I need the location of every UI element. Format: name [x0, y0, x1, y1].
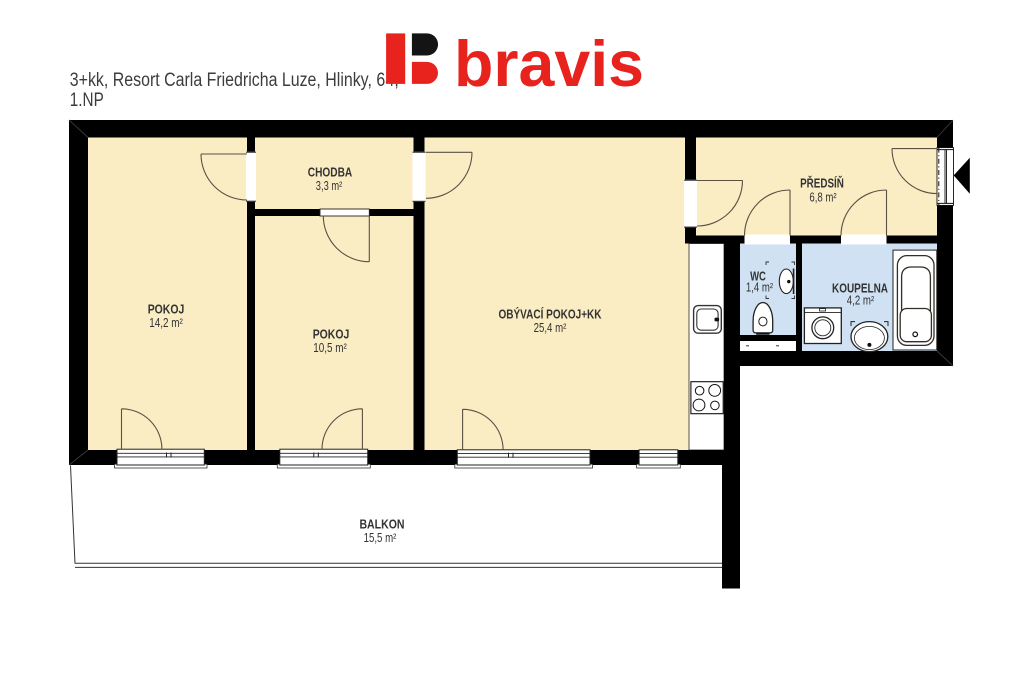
svg-text:1.NP: 1.NP — [70, 90, 104, 111]
svg-text:14,2 m²: 14,2 m² — [149, 316, 183, 330]
svg-text:10,5 m²: 10,5 m² — [313, 341, 347, 355]
svg-text:1,4 m²: 1,4 m² — [746, 281, 773, 295]
svg-text:3+kk, Resort Carla Friedricha: 3+kk, Resort Carla Friedricha Luze, Hlin… — [70, 70, 385, 91]
svg-text:CHODBA: CHODBA — [308, 166, 353, 180]
svg-text:25,4 m²: 25,4 m² — [534, 321, 567, 335]
svg-text:PŘEDSÍŇ: PŘEDSÍŇ — [800, 176, 844, 191]
svg-text:6,8 m²: 6,8 m² — [809, 190, 836, 204]
svg-text:bravis: bravis — [454, 28, 644, 100]
svg-text:OBÝVACÍ POKOJ+KK: OBÝVACÍ POKOJ+KK — [498, 307, 601, 322]
svg-text:POKOJ: POKOJ — [313, 328, 350, 342]
svg-text:3,3 m²: 3,3 m² — [316, 179, 342, 193]
svg-text:POKOJ: POKOJ — [148, 303, 185, 317]
svg-text:BALKON: BALKON — [359, 518, 404, 532]
svg-text:4,2 m²: 4,2 m² — [847, 294, 874, 308]
svg-text:15,5 m²: 15,5 m² — [364, 531, 397, 545]
